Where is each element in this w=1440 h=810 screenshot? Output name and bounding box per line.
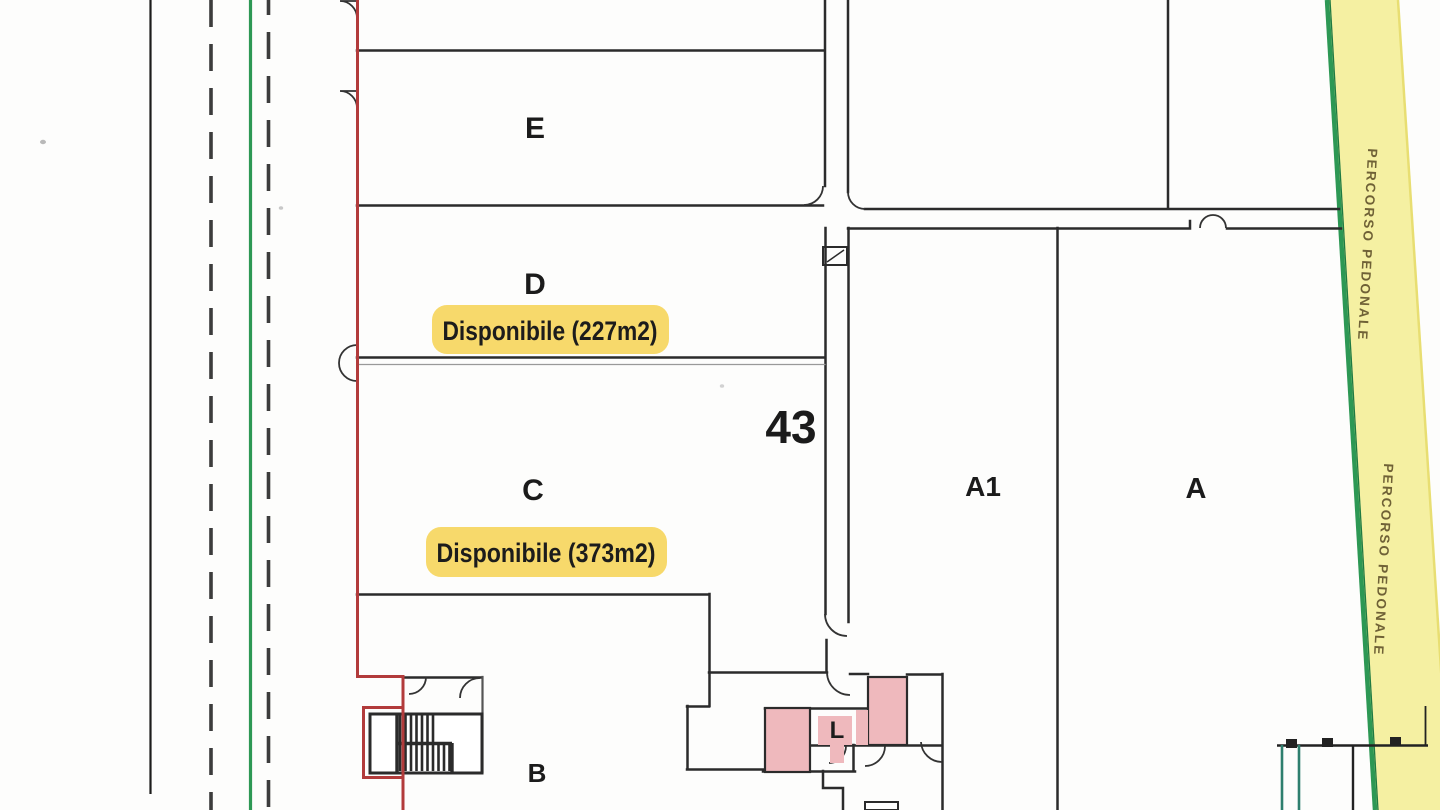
property-boundary [358,0,404,810]
room-label-l: L [830,717,845,744]
availability-text-d: Disponibile (227m2) [443,316,658,346]
pink-fragment [830,745,844,763]
room-label-c: C [522,474,544,507]
stairs [370,714,482,773]
street-number: 43 [765,401,816,453]
boundary-red-line [358,0,404,810]
floor-plan: PERCORSO PEDONALE PERCORSO PEDONALE [0,0,1440,810]
room-label-b: B [528,758,547,788]
corridor-door-leaf [827,250,844,262]
room-label-a1: A1 [965,471,1001,502]
scan-speck [279,206,283,210]
fence-post-mark [1286,739,1297,748]
pink-fragment [856,710,868,745]
walls [357,0,1341,810]
room-label-a: A [1186,473,1207,505]
availability-text-c: Disponibile (373m2) [437,538,656,568]
door-arcs [339,1,1226,766]
scan-speck [40,140,46,144]
wall-segments [357,0,1341,810]
pedestrian-path-band: PERCORSO PEDONALE PERCORSO PEDONALE [1327,0,1440,810]
doors [339,1,1226,766]
stair-treads-upper [400,714,433,743]
labels: E D Disponibile (227m2) C Disponibile (3… [437,112,1207,788]
small-box-bottom [865,802,898,810]
pink-room-left [765,708,810,772]
room-label-d: D [524,268,546,301]
site-lines [40,0,724,810]
fence-post-mark [1390,737,1401,746]
scan-speck [720,384,724,388]
pink-room-top [868,677,907,745]
room-label-e: E [525,112,545,145]
floor-plan-drawing: PERCORSO PEDONALE PERCORSO PEDONALE [0,0,1440,810]
fence-post-mark [1322,738,1333,747]
